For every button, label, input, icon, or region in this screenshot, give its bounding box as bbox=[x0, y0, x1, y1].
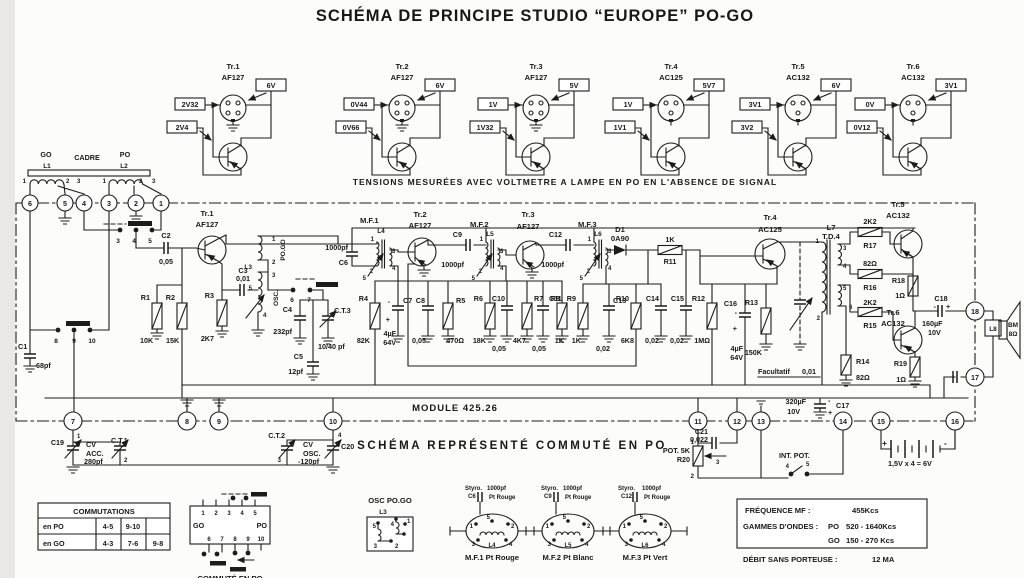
r17-label: R17 bbox=[863, 241, 876, 250]
can2-styro: Styro. bbox=[541, 486, 558, 492]
tr6-v3: 3V1 bbox=[945, 81, 958, 90]
r7-value: 4K7 bbox=[513, 336, 526, 345]
tr2-v1: 0V44 bbox=[351, 100, 368, 109]
c20-l1: CV bbox=[303, 440, 313, 449]
c19-l1: CV bbox=[86, 440, 96, 449]
po-label: PO bbox=[120, 150, 131, 159]
tr6-name: Tr.6 bbox=[906, 62, 919, 71]
c7-value2: 64V bbox=[383, 338, 396, 347]
tr3-type: AF127 bbox=[525, 73, 548, 82]
tr4-v3: 5V7 bbox=[703, 81, 716, 90]
go-label: GO bbox=[40, 150, 52, 159]
commutations-cell: 9-10 bbox=[126, 522, 140, 531]
c17-plus: + bbox=[828, 408, 832, 417]
mf1-label: M.F.1 bbox=[360, 216, 379, 225]
tr5-type: AC132 bbox=[786, 73, 810, 82]
tr4-v2: 1V1 bbox=[614, 123, 627, 132]
facultatif-value: 0,01 bbox=[802, 367, 816, 376]
c8-label: C8 bbox=[416, 296, 425, 305]
r17-value: 2K2 bbox=[863, 217, 876, 226]
tr1-name: Tr.1 bbox=[226, 62, 240, 71]
r8-label: R8 bbox=[551, 294, 560, 303]
can2-caption: M.F.2 Pt Blanc bbox=[542, 553, 593, 562]
terminal-15: 15 bbox=[877, 417, 885, 426]
r1-value: 10K bbox=[140, 336, 154, 345]
commutations-row-label: en PO bbox=[43, 522, 64, 531]
tr3-v1: 1V bbox=[489, 100, 498, 109]
debit-value: 12 MA bbox=[872, 555, 895, 564]
tr3-type: AF127 bbox=[517, 222, 540, 231]
pot-name: R20 bbox=[677, 455, 690, 464]
r1-label: R1 bbox=[141, 293, 150, 302]
c6-label: C6 bbox=[339, 258, 348, 267]
r19-label: R19 bbox=[894, 359, 907, 368]
c2-label: C2 bbox=[161, 231, 170, 240]
schematic-page: SCHÉMA DE PRINCIPE STUDIO “EUROPE” PO-GO… bbox=[0, 0, 1024, 578]
freq-label: FRÉQUENCE MF : bbox=[745, 506, 810, 515]
connector-po: PO bbox=[257, 521, 268, 530]
terminal-18: 18 bbox=[971, 307, 979, 316]
battery-minus: - bbox=[944, 438, 948, 448]
tr4-v1: 1V bbox=[624, 100, 633, 109]
freq-value: 455Kcs bbox=[852, 506, 879, 515]
r10-value: 6K8 bbox=[621, 336, 634, 345]
connector-pin: 10 bbox=[258, 537, 265, 543]
r6-value: 18K bbox=[473, 336, 487, 345]
tr6-v1: 0V bbox=[866, 100, 875, 109]
terminal-16: 16 bbox=[951, 417, 959, 426]
c19-label: C19 bbox=[51, 438, 64, 447]
commutations-cell: 7-6 bbox=[128, 539, 138, 548]
l8-label: L8 bbox=[989, 326, 997, 333]
r8-value: 1K bbox=[555, 336, 565, 345]
tr1-v1: 2V32 bbox=[182, 100, 199, 109]
can3-caption: M.F.3 Pt Vert bbox=[623, 553, 668, 562]
c6-value: 1000pf bbox=[325, 243, 348, 252]
r2-value: 15K bbox=[166, 336, 180, 345]
c10-label: C10 bbox=[492, 294, 505, 303]
sw8910-pin: 8 bbox=[54, 338, 58, 345]
c8-value: 0,05 bbox=[412, 336, 426, 345]
tr2-type: AF127 bbox=[409, 221, 432, 230]
bands-label: GAMMES D'ONDES : bbox=[743, 522, 818, 531]
pot-label: POT. 5K bbox=[663, 446, 691, 455]
scan-edge bbox=[0, 0, 15, 578]
c20-label: C20 bbox=[341, 442, 354, 451]
r12-value: 1MΩ bbox=[694, 336, 710, 345]
tr4-name: Tr.4 bbox=[664, 62, 678, 71]
r16-label: R16 bbox=[863, 283, 876, 292]
terminal-2: 2 bbox=[134, 199, 138, 208]
c14-label: C14 bbox=[646, 294, 659, 303]
ct3-label: C.T.3 bbox=[334, 306, 351, 315]
tr6-name: Tr.6 bbox=[886, 308, 899, 317]
measurement-note: TENSIONS MESURÉES AVEC VOLTMETRE A LAMPE… bbox=[353, 177, 777, 187]
r13-label: R13 bbox=[745, 298, 758, 307]
terminal-6: 6 bbox=[28, 199, 32, 208]
tr5-name: Tr.5 bbox=[791, 62, 805, 71]
c1-label: C1 bbox=[18, 342, 27, 351]
c12-value: 1000pf bbox=[541, 260, 564, 269]
tr6-type: AC132 bbox=[901, 73, 925, 82]
r4-value: 82K bbox=[357, 336, 371, 345]
c17-value: 320µF bbox=[785, 397, 806, 406]
bands-po: PO bbox=[828, 522, 839, 531]
r16-value: 82Ω bbox=[863, 259, 877, 268]
r11-label: R11 bbox=[664, 257, 677, 266]
terminal-10: 10 bbox=[329, 417, 337, 426]
mf1-coil: L4 bbox=[377, 228, 385, 235]
c3-value: 0,01 bbox=[236, 274, 250, 283]
c16-value: 4µF bbox=[730, 344, 743, 353]
r15-value: 2K2 bbox=[863, 298, 876, 307]
bands-go-range: 150 - 270 Kcs bbox=[846, 536, 894, 545]
can2-val: 1000pf bbox=[563, 486, 583, 492]
c18-value: 160µF bbox=[922, 319, 943, 328]
ct3-value: 10/40 pf bbox=[318, 342, 345, 351]
r3-label: R3 bbox=[205, 291, 214, 300]
battery-value: 1,5V x 4 = 6V bbox=[888, 459, 932, 468]
bands-po-range: 520 - 1640Kcs bbox=[846, 522, 896, 531]
c1-value: 68pf bbox=[36, 361, 51, 370]
tr2-name: Tr.2 bbox=[395, 62, 408, 71]
r11-value: 1K bbox=[665, 235, 675, 244]
can3-val: 1000pf bbox=[642, 486, 662, 492]
tr3-name: Tr.3 bbox=[521, 210, 534, 219]
can2-coil: L5 bbox=[564, 543, 572, 549]
commutations-table: COMMUTATIONS en PO 4-5 9-10 en GO 4-3 7-… bbox=[38, 503, 170, 550]
mf2-coil: L5 bbox=[486, 231, 494, 238]
tr1-v2: 2V4 bbox=[176, 123, 189, 132]
r5-label: R5 bbox=[456, 296, 465, 305]
c15-label: C15 bbox=[671, 294, 684, 303]
c20-value: -120pf bbox=[298, 457, 320, 466]
r12-label: R12 bbox=[692, 294, 705, 303]
commutations-title: COMMUTATIONS bbox=[73, 507, 135, 516]
tr2-v2: 0V66 bbox=[343, 123, 360, 132]
tr3-v3: 5V bbox=[570, 81, 579, 90]
cadre-label: CADRE bbox=[74, 153, 100, 162]
facultatif-label: Facultatif bbox=[758, 367, 791, 376]
sw8910-pin: 9 bbox=[72, 338, 76, 345]
c10-value: 0,05 bbox=[492, 344, 506, 353]
connector-caption: COMMUTÉ EN PO bbox=[198, 574, 263, 578]
tr6-type: AC132 bbox=[881, 319, 905, 328]
c19-value: 280pf bbox=[84, 457, 103, 466]
c16-value2: 64V bbox=[730, 353, 743, 362]
tr5-name: Tr.5 bbox=[891, 200, 905, 209]
r4-label: R4 bbox=[359, 294, 368, 303]
speaker-label: BM bbox=[1008, 322, 1018, 329]
c16-label: C16 bbox=[724, 299, 737, 308]
terminal-4: 4 bbox=[82, 199, 86, 208]
terminal-12: 12 bbox=[733, 417, 741, 426]
tr4-type: AC125 bbox=[659, 73, 683, 82]
can1-val: 1000pf bbox=[487, 486, 507, 492]
tr2-name: Tr.2 bbox=[413, 210, 426, 219]
c9-value: 1000pf bbox=[441, 260, 464, 269]
r6-label: R6 bbox=[474, 294, 483, 303]
terminal-8: 8 bbox=[185, 417, 189, 426]
tr4-type: AC125 bbox=[758, 225, 782, 234]
tr5-type: AC132 bbox=[886, 211, 910, 220]
tr5-v1: 3V1 bbox=[749, 100, 762, 109]
terminal-13: 13 bbox=[757, 417, 765, 426]
l7-label: L7 bbox=[827, 223, 836, 232]
r9-label: R9 bbox=[567, 294, 576, 303]
terminal-14: 14 bbox=[839, 417, 847, 426]
commutations-cell: 9-8 bbox=[153, 539, 163, 548]
c5-label: C5 bbox=[294, 352, 303, 361]
sw345-pin: 5 bbox=[148, 238, 152, 245]
l7-type: T.D.4 bbox=[822, 232, 840, 241]
commutations-cell: 4-3 bbox=[103, 539, 113, 548]
l1-label: L1 bbox=[43, 163, 51, 170]
bands-go: GO bbox=[828, 536, 840, 545]
d1-type: 0A90 bbox=[611, 234, 629, 243]
battery-plus: + bbox=[882, 438, 888, 448]
l2-label: L2 bbox=[120, 163, 128, 170]
can1-caption: M.F.1 Pt Rouge bbox=[465, 553, 519, 562]
c4-value: 232pf bbox=[273, 327, 292, 336]
schematic-canvas: SCHÉMA DE PRINCIPE STUDIO “EUROPE” PO-GO… bbox=[0, 0, 1024, 578]
debit-label: DÉBIT SANS PORTEUSE : bbox=[743, 555, 838, 564]
ct1-label: C.T.1 bbox=[111, 436, 128, 445]
c14-value: 0,02 bbox=[645, 336, 659, 345]
tr3-name: Tr.3 bbox=[529, 62, 542, 71]
r19-value: 1Ω bbox=[896, 375, 906, 384]
can2-cap: C9 bbox=[544, 494, 552, 500]
can3-cap: C12 bbox=[621, 494, 633, 500]
c4-label: C4 bbox=[283, 305, 292, 314]
r18-value: 1Ω bbox=[895, 291, 905, 300]
terminal-7: 7 bbox=[71, 417, 75, 426]
c17-value2: 10V bbox=[787, 407, 800, 416]
r15-label: R15 bbox=[863, 321, 876, 330]
c7-plus: + bbox=[386, 315, 390, 324]
c2-value: 0,05 bbox=[159, 257, 173, 266]
tr1-v3: 6V bbox=[267, 81, 276, 90]
terminal-9: 9 bbox=[217, 417, 221, 426]
mf3-coil: L6 bbox=[594, 231, 602, 238]
sw345-pin: 3 bbox=[116, 238, 120, 245]
c18-plus: + bbox=[946, 302, 950, 311]
l3-osc-label: OSC. bbox=[273, 290, 280, 306]
page-title: SCHÉMA DE PRINCIPE STUDIO “EUROPE” PO-GO bbox=[316, 6, 754, 25]
ct2-label: C.T.2 bbox=[268, 431, 285, 440]
terminal-5: 5 bbox=[63, 199, 67, 208]
terminal-11: 11 bbox=[694, 417, 702, 426]
r13-value: 150K bbox=[745, 348, 763, 357]
tr2-type: AF127 bbox=[391, 73, 414, 82]
speaker-impedance: 8Ω bbox=[1009, 331, 1018, 338]
can2-dot: Pt Rouge bbox=[565, 495, 592, 501]
terminal-1: 1 bbox=[159, 199, 163, 208]
can1-cap: C6 bbox=[468, 494, 476, 500]
c5-value: 12pf bbox=[288, 367, 303, 376]
commutations-row-label: en GO bbox=[43, 539, 65, 548]
sw8910-pin: 10 bbox=[88, 338, 96, 345]
terminal-3: 3 bbox=[107, 199, 111, 208]
intpot-label: INT. POT. bbox=[779, 451, 810, 460]
r14-label: R14 bbox=[856, 357, 869, 366]
r2-label: R2 bbox=[166, 293, 175, 302]
schema-note: SCHÉMA REPRÉSENTÉ COMMUTÉ EN PO bbox=[357, 439, 667, 452]
tr1-type: AF127 bbox=[222, 73, 245, 82]
l3-pogo-label: PO.GO bbox=[280, 239, 287, 260]
r10-label: R10 bbox=[616, 294, 629, 303]
r7-label: R7 bbox=[534, 294, 543, 303]
commutations-cell: 4-5 bbox=[103, 522, 113, 531]
c13-value: 0,02 bbox=[596, 344, 610, 353]
r18-label: R18 bbox=[892, 276, 905, 285]
mf3-label: M.F.3 bbox=[578, 220, 597, 229]
terminal-17: 17 bbox=[971, 373, 979, 382]
c11-value: 0,05 bbox=[532, 344, 546, 353]
sw67-pin: 6 bbox=[290, 297, 294, 304]
c12-label: C12 bbox=[549, 230, 562, 239]
tr4-name: Tr.4 bbox=[763, 213, 777, 222]
module-label: MODULE 425.26 bbox=[412, 403, 498, 414]
r9-value: 1K bbox=[572, 336, 582, 345]
r5-value: 470Ω bbox=[446, 336, 464, 345]
osc-pogo-box: OSC PO.GO L3 5 4 1 3 2 bbox=[367, 496, 413, 551]
tr2-v3: 6V bbox=[436, 81, 445, 90]
can3-coil: L6 bbox=[641, 543, 649, 549]
l3-label: L3 bbox=[244, 264, 252, 271]
can1-styro: Styro. bbox=[465, 486, 482, 492]
can1-coil: L4 bbox=[488, 543, 496, 549]
tr1-type: AF127 bbox=[196, 220, 219, 229]
c15-value: 0,02 bbox=[670, 336, 684, 345]
can1-dot: Pt Rouge bbox=[489, 495, 516, 501]
c18-value2: 10V bbox=[928, 328, 941, 337]
tr6-v2: 0V12 bbox=[854, 123, 871, 132]
osc-box-title: OSC PO.GO bbox=[368, 496, 412, 505]
c16-plus: + bbox=[733, 324, 737, 333]
r14-value: 82Ω bbox=[856, 373, 870, 382]
tr3-v2: 1V32 bbox=[477, 123, 494, 132]
connector-go: GO bbox=[193, 521, 205, 530]
tr1-name: Tr.1 bbox=[200, 209, 214, 218]
r3-value: 2K7 bbox=[201, 334, 214, 343]
c7-value: 4µF bbox=[383, 329, 396, 338]
sw345-pin: 4 bbox=[132, 238, 136, 245]
can3-dot: Pt Rouge bbox=[644, 495, 671, 501]
d1-label: D1 bbox=[615, 225, 625, 234]
osc-box-coil: L3 bbox=[379, 509, 387, 516]
c9-label: C9 bbox=[453, 230, 462, 239]
can3-styro: Styro. bbox=[618, 486, 635, 492]
mf2-label: M.F.2 bbox=[470, 220, 489, 229]
tr5-v2: 3V2 bbox=[741, 123, 754, 132]
tr5-v3: 6V bbox=[832, 81, 841, 90]
c17-label: C17 bbox=[836, 401, 849, 410]
